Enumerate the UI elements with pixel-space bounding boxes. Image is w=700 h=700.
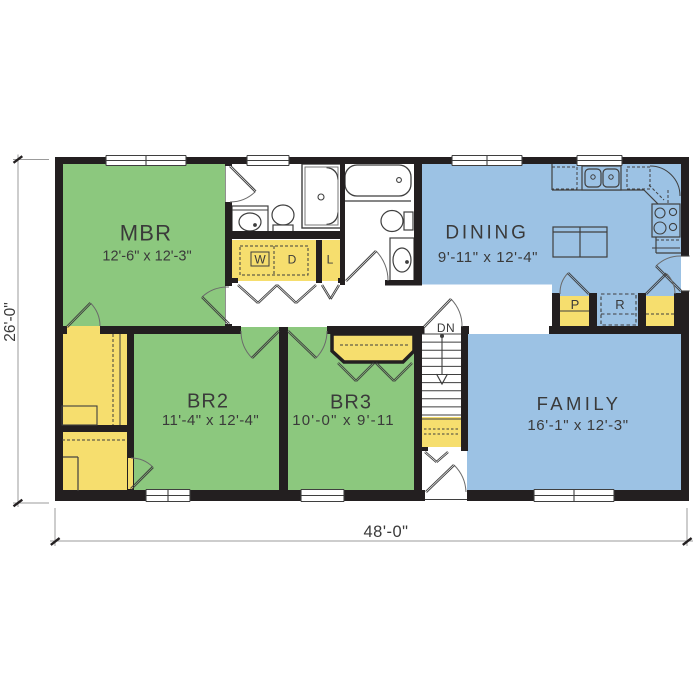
svg-text:R: R — [615, 297, 624, 312]
svg-text:48'-0": 48'-0" — [363, 523, 408, 541]
svg-text:BR3: BR3 — [330, 392, 372, 414]
svg-text:BR2: BR2 — [187, 391, 229, 413]
svg-text:W: W — [254, 253, 266, 267]
svg-text:26'-0": 26'-0" — [2, 302, 19, 341]
svg-text:DINING: DINING — [445, 223, 528, 244]
svg-text:16'-1" x 12'-3": 16'-1" x 12'-3" — [527, 417, 628, 434]
svg-text:DN: DN — [437, 321, 455, 335]
svg-text:11'-4" x 12'-4": 11'-4" x 12'-4" — [162, 412, 259, 429]
svg-text:FAMILY: FAMILY — [537, 393, 622, 414]
svg-text:12'-6" x 12'-3": 12'-6" x 12'-3" — [102, 249, 191, 265]
svg-text:10'-0" x 9'-11: 10'-0" x 9'-11 — [292, 412, 395, 429]
svg-text:D: D — [288, 253, 297, 267]
svg-text:P: P — [571, 297, 580, 312]
svg-text:9'-11" x 12'-4": 9'-11" x 12'-4" — [438, 249, 538, 266]
svg-text:MBR: MBR — [120, 221, 173, 246]
svg-text:L: L — [327, 253, 334, 267]
